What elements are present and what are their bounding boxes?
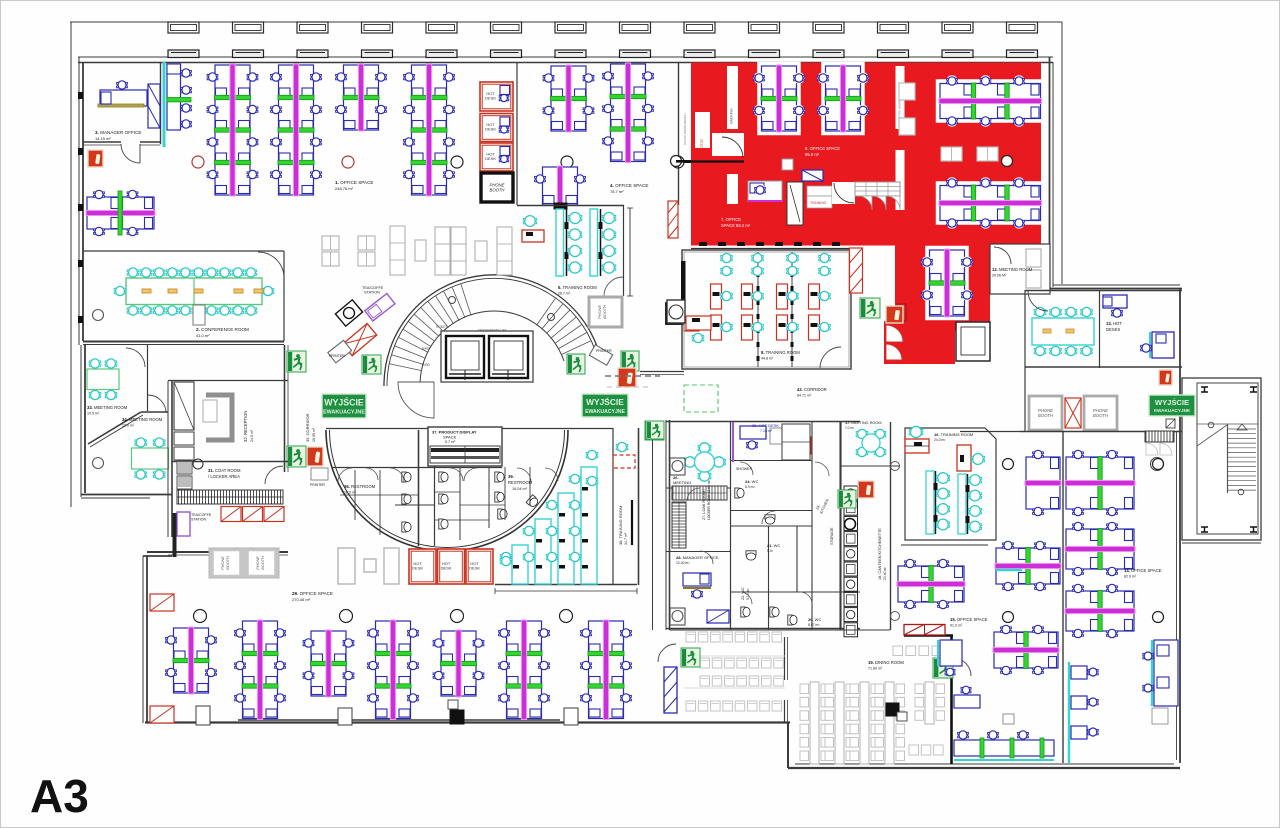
svg-text:34. MEETING ROOM: 34. MEETING ROOM bbox=[122, 417, 163, 422]
svg-text:13.0 m²: 13.0 m² bbox=[122, 423, 135, 427]
svg-text:BACKING: BACKING bbox=[730, 108, 734, 124]
svg-text:38. TRAINING ROOM: 38. TRAINING ROOM bbox=[618, 506, 623, 545]
svg-text:13. HOT: 13. HOT bbox=[1106, 321, 1122, 326]
svg-text:EWAKUACYJNE: EWAKUACYJNE bbox=[585, 409, 625, 415]
svg-text:9. OFFICE SPACE: 9. OFFICE SPACE bbox=[805, 146, 840, 151]
svg-text:A3: A3 bbox=[30, 770, 89, 822]
svg-text:/ LOCKER AREA: / LOCKER AREA bbox=[208, 474, 240, 479]
svg-text:DESK: DESK bbox=[485, 96, 496, 101]
svg-text:42. CORRIDOR: 42. CORRIDOR bbox=[797, 387, 827, 392]
svg-text:7.16 m²: 7.16 m² bbox=[760, 429, 773, 433]
svg-text:5.9 m²: 5.9 m² bbox=[745, 485, 755, 489]
svg-text:64.71 m²: 64.71 m² bbox=[797, 393, 812, 397]
svg-text:5.7 m²: 5.7 m² bbox=[445, 440, 456, 444]
svg-text:4. OFFICE SPACE: 4. OFFICE SPACE bbox=[610, 183, 648, 188]
svg-text:33. MEETING ROOM: 33. MEETING ROOM bbox=[87, 405, 128, 410]
svg-text:32. RECEPTION: 32. RECEPTION bbox=[243, 411, 248, 442]
svg-text:DESK: DESK bbox=[441, 565, 452, 570]
svg-text:STATIC: STATIC bbox=[700, 138, 704, 150]
svg-text:22. WC: 22. WC bbox=[741, 587, 745, 600]
svg-text:3. MANAGER OFFICE: 3. MANAGER OFFICE bbox=[95, 130, 141, 135]
svg-text:BOOTH: BOOTH bbox=[490, 188, 506, 193]
svg-text:31. COAT ROOM: 31. COAT ROOM bbox=[208, 468, 241, 473]
svg-text:PRINTER: PRINTER bbox=[310, 483, 325, 487]
svg-text:14. OFFICE SPACE: 14. OFFICE SPACE bbox=[1124, 568, 1162, 573]
svg-text:TEA/COFFE: TEA/COFFE bbox=[362, 286, 384, 290]
svg-text:SHOWER: SHOWER bbox=[736, 467, 753, 471]
svg-text:20. WC: 20. WC bbox=[808, 617, 821, 622]
svg-text:DESK: DESK bbox=[485, 156, 496, 161]
svg-text:12.40 m²: 12.40 m² bbox=[676, 561, 690, 565]
svg-text:10.09 m²: 10.09 m² bbox=[312, 427, 316, 442]
svg-text:26.7 m²: 26.7 m² bbox=[558, 291, 571, 295]
svg-text:PRINTER: PRINTER bbox=[596, 349, 612, 353]
svg-text:270.45 m²: 270.45 m² bbox=[292, 597, 311, 602]
svg-text:SPACE: SPACE bbox=[443, 435, 457, 440]
svg-text:248.76 m²: 248.76 m² bbox=[335, 186, 354, 191]
svg-text:34.7 m²: 34.7 m² bbox=[624, 532, 628, 545]
svg-text:5. TRAINING ROOM: 5. TRAINING ROOM bbox=[558, 285, 597, 290]
svg-text:21. WC: 21. WC bbox=[767, 543, 780, 548]
svg-text:36. RESTROOM: 36. RESTROOM bbox=[344, 484, 376, 489]
svg-text:PHONE: PHONE bbox=[256, 556, 260, 570]
svg-text:RPS: RPS bbox=[422, 347, 430, 351]
svg-text:25. HOT DESK: 25. HOT DESK bbox=[752, 423, 779, 428]
svg-text:5.0²: 5.0² bbox=[767, 549, 774, 553]
svg-text:15. OFFICE SPACE: 15. OFFICE SPACE bbox=[950, 617, 988, 622]
svg-text:BOOTH: BOOTH bbox=[602, 305, 607, 319]
svg-text:2. CONFERENCE ROOM: 2. CONFERENCE ROOM bbox=[196, 327, 249, 332]
svg-text:STATION: STATION bbox=[364, 291, 380, 295]
svg-text:17. MEETING ROOM: 17. MEETING ROOM bbox=[845, 421, 882, 425]
svg-text:8.57 m²: 8.57 m² bbox=[808, 623, 820, 627]
svg-text:TEA/COFFE: TEA/COFFE bbox=[191, 513, 212, 517]
svg-text:STORAGE: STORAGE bbox=[830, 527, 834, 545]
svg-text:DESK: DESK bbox=[469, 565, 480, 570]
svg-text:55.04 m²: 55.04 m² bbox=[913, 344, 928, 348]
svg-text:BOOTH: BOOTH bbox=[261, 556, 265, 570]
svg-text:ROBOT: ROBOT bbox=[436, 325, 447, 329]
svg-text:20.40 m²: 20.40 m² bbox=[883, 566, 887, 580]
svg-text:29. OFFICE SPACE: 29. OFFICE SPACE bbox=[292, 591, 333, 596]
svg-text:WYJŚCIE: WYJŚCIE bbox=[586, 396, 624, 407]
svg-text:RESTROOM: RESTROOM bbox=[508, 480, 533, 485]
svg-text:14.15 m²: 14.15 m² bbox=[95, 136, 111, 141]
svg-text:10.5 m²: 10.5 m² bbox=[87, 411, 100, 415]
svg-text:44.8 m²: 44.8 m² bbox=[761, 356, 774, 360]
svg-text:78.7 m²: 78.7 m² bbox=[610, 189, 624, 194]
svg-text:95.0 m²: 95.0 m² bbox=[805, 152, 820, 157]
svg-text:41.0 m²: 41.0 m² bbox=[196, 333, 210, 338]
svg-text:24.0 m²: 24.0 m² bbox=[934, 438, 946, 442]
svg-text:PRINTER: PRINTER bbox=[329, 354, 345, 358]
svg-text:19. DINING ROOM: 19. DINING ROOM bbox=[868, 660, 904, 665]
svg-text:SPACE 58.2 m²: SPACE 58.2 m² bbox=[721, 223, 751, 228]
svg-text:82.9 m²: 82.9 m² bbox=[1124, 574, 1137, 578]
svg-text:ROD: ROD bbox=[422, 363, 430, 367]
svg-text:8. TRAINING ROOM: 8. TRAINING ROOM bbox=[761, 350, 800, 355]
svg-text:TRASH/WASTE LIFT: TRASH/WASTE LIFT bbox=[478, 328, 507, 332]
svg-text:27. LOAK ROOM /: 27. LOAK ROOM / bbox=[702, 488, 706, 520]
svg-text:39.: 39. bbox=[508, 474, 514, 479]
svg-text:STATIC WORK BENCH: STATIC WORK BENCH bbox=[683, 113, 687, 145]
svg-text:35. CORRIDOR: 35. CORRIDOR bbox=[305, 413, 310, 442]
svg-text:EWAKUACYJNE: EWAKUACYJNE bbox=[1154, 408, 1190, 413]
svg-text:24. WC: 24. WC bbox=[745, 479, 758, 484]
svg-text:16. TRAINING ROOM: 16. TRAINING ROOM bbox=[934, 432, 973, 437]
svg-text:16.04 m²: 16.04 m² bbox=[512, 487, 528, 491]
svg-text:DESKS: DESKS bbox=[1106, 327, 1120, 332]
svg-text:91.0 m²: 91.0 m² bbox=[950, 623, 963, 627]
svg-text:WYJŚCIE: WYJŚCIE bbox=[324, 396, 364, 407]
svg-text:WYJŚCIE: WYJŚCIE bbox=[1155, 398, 1189, 407]
svg-text:7.0 m²: 7.0 m² bbox=[845, 426, 854, 430]
svg-text:DESK: DESK bbox=[412, 565, 423, 570]
svg-text:DESK: DESK bbox=[485, 127, 496, 132]
svg-text:BOOTH: BOOTH bbox=[1093, 413, 1109, 418]
svg-text:STATION: STATION bbox=[191, 518, 206, 522]
svg-text:LOCKER ROOM 12.60 m²: LOCKER ROOM 12.60 m² bbox=[707, 479, 711, 520]
svg-text:12. MEETING ROOM: 12. MEETING ROOM bbox=[992, 267, 1033, 272]
svg-text:10.: 10. bbox=[916, 337, 922, 342]
svg-text:TRAINING: TRAINING bbox=[810, 201, 827, 205]
svg-text:24.5 m²: 24.5 m² bbox=[250, 429, 254, 442]
svg-text:1. OFFICE SPACE: 1. OFFICE SPACE bbox=[335, 180, 373, 185]
svg-text:18. CANTEEN KITCHENETTE: 18. CANTEEN KITCHENETTE bbox=[878, 528, 882, 580]
svg-text:BOOTH: BOOTH bbox=[1038, 413, 1054, 418]
svg-text:7. OFFICE: 7. OFFICE bbox=[721, 217, 741, 222]
svg-text:20.06 M²: 20.06 M² bbox=[992, 273, 1007, 277]
svg-text:EWAKUACYJNE: EWAKUACYJNE bbox=[323, 410, 365, 416]
svg-text:71.80 m²: 71.80 m² bbox=[868, 666, 883, 670]
svg-text:BOOTH: BOOTH bbox=[226, 556, 230, 570]
svg-text:PHONE: PHONE bbox=[221, 556, 225, 570]
svg-text:MEETING: MEETING bbox=[673, 480, 691, 485]
